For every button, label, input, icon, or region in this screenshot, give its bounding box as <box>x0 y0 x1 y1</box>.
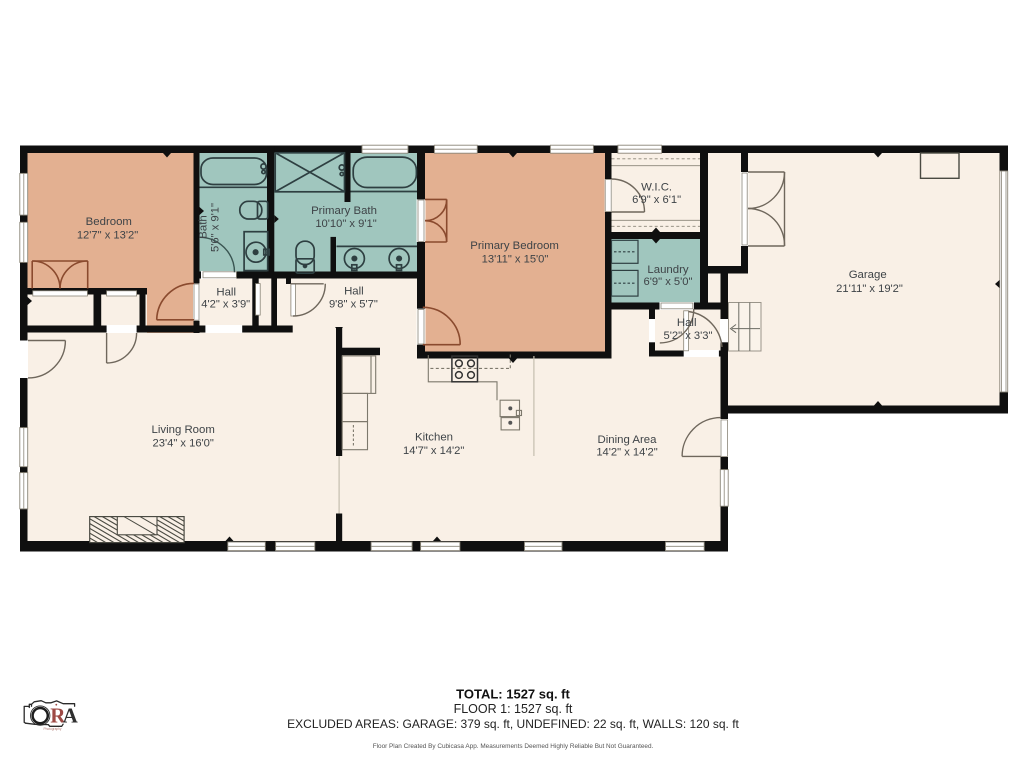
svg-text:14'7" x 14'2": 14'7" x 14'2" <box>403 445 464 457</box>
svg-text:W.I.C.: W.I.C. <box>641 182 672 194</box>
svg-text:4'2" x 3'9": 4'2" x 3'9" <box>201 299 250 311</box>
svg-text:10'10" x 9'1": 10'10" x 9'1" <box>315 218 376 230</box>
svg-text:23'4" x 16'0": 23'4" x 16'0" <box>153 437 214 449</box>
svg-text:TOTAL: 1527 sq. ft: TOTAL: 1527 sq. ft <box>456 687 570 702</box>
svg-text:EXCLUDED AREAS: GARAGE: 379 sq: EXCLUDED AREAS: GARAGE: 379 sq. ft, UNDE… <box>287 717 739 731</box>
svg-text:Bedroom: Bedroom <box>86 216 132 228</box>
svg-text:Floor Plan Created By Cubicasa: Floor Plan Created By Cubicasa App. Meas… <box>373 743 654 750</box>
svg-text:Hall: Hall <box>344 286 364 298</box>
svg-text:14'2" x 14'2": 14'2" x 14'2" <box>596 447 657 459</box>
svg-text:Bath: Bath <box>198 215 210 238</box>
svg-text:5'2" x 3'3": 5'2" x 3'3" <box>664 330 713 342</box>
svg-text:Photography: Photography <box>43 727 61 731</box>
svg-text:Primary Bath: Primary Bath <box>311 205 377 217</box>
svg-text:Primary Bedroom: Primary Bedroom <box>470 240 559 252</box>
svg-text:5'6" x 9'1": 5'6" x 9'1" <box>210 203 222 252</box>
svg-text:A: A <box>63 704 79 728</box>
svg-text:Kitchen: Kitchen <box>415 432 453 444</box>
svg-text:Laundry: Laundry <box>647 264 688 276</box>
svg-text:Garage: Garage <box>849 269 887 281</box>
svg-text:FLOOR 1: 1527 sq. ft: FLOOR 1: 1527 sq. ft <box>454 702 573 716</box>
svg-text:21'11" x 19'2": 21'11" x 19'2" <box>836 283 903 295</box>
svg-text:Hall: Hall <box>216 287 236 299</box>
svg-text:12'7" x 13'2": 12'7" x 13'2" <box>77 230 138 242</box>
svg-text:Dining Area: Dining Area <box>598 434 658 446</box>
svg-text:6'9" x 6'1": 6'9" x 6'1" <box>632 194 681 206</box>
svg-text:6'9" x 5'0": 6'9" x 5'0" <box>644 276 693 288</box>
svg-text:Hall: Hall <box>677 317 697 329</box>
svg-text:9'8" x 5'7": 9'8" x 5'7" <box>329 299 378 311</box>
svg-text:13'11" x 15'0": 13'11" x 15'0" <box>482 254 549 266</box>
svg-text:Living Room: Living Room <box>152 424 215 436</box>
